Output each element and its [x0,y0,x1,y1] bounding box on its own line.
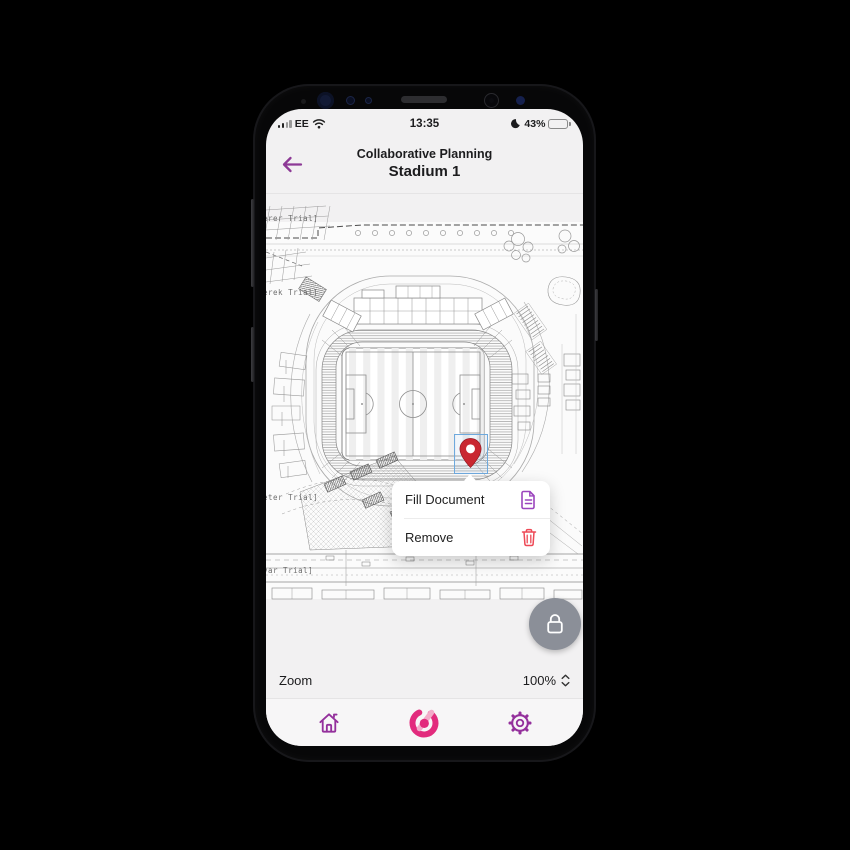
menu-pointer-arrow [463,474,477,482]
earpiece-speaker [401,96,447,103]
power-button [595,289,598,341]
screenshot-canvas: EE 13:35 43% [0,0,850,850]
app-header: Collaborative Planning Stadium 1 [266,134,583,194]
iris-camera [484,93,499,108]
watermark-text: erer Trial] [266,214,318,223]
trash-icon [521,528,537,547]
lock-icon [544,612,566,636]
status-bar: EE 13:35 43% [266,109,583,134]
gear-icon [507,710,533,736]
watermark-text: eter Trial] [266,493,318,502]
front-camera [317,92,334,109]
lock-button[interactable] [529,598,581,650]
zoom-label: Zoom [279,673,312,688]
menu-item-label: Fill Document [405,492,484,507]
page-subtitle: Stadium 1 [357,163,492,180]
app-screen: EE 13:35 43% [266,109,583,746]
nav-settings-button[interactable] [505,708,535,738]
watermark-text: erek Trial] [266,288,318,297]
sensor-dot [301,99,306,104]
proximity-sensor [346,96,355,105]
home-icon [316,710,342,736]
menu-item-label: Remove [405,530,453,545]
document-icon [520,490,537,510]
back-button[interactable] [278,150,306,178]
brand-logo [406,705,442,741]
smartphone-mockup: EE 13:35 43% [253,84,596,762]
pin-selection-box[interactable] [454,434,488,474]
volume-button [251,199,254,287]
bottom-nav-bar [266,698,583,746]
nav-home-button[interactable] [314,708,344,738]
pin-context-menu: Fill Document Remove [392,481,550,556]
map-pin-icon[interactable] [458,437,483,469]
stadium-floorplan: erer Trial] erek Trial] eter Trial] var … [266,194,583,663]
sensor-dot [365,97,372,104]
arrow-left-icon [281,156,303,173]
clock: 13:35 [266,118,583,130]
menu-item-fill-document[interactable]: Fill Document [392,481,550,518]
nav-brand-button[interactable] [404,703,444,743]
led-indicator [516,96,525,105]
floorplan-viewport[interactable]: erer Trial] erek Trial] eter Trial] var … [266,194,583,663]
zoom-level-select[interactable]: 100% [523,673,570,688]
page-title: Collaborative Planning [357,147,492,161]
menu-item-remove[interactable]: Remove [392,519,550,556]
zoom-control: Zoom 100% [266,663,583,698]
zoom-level-value: 100% [523,673,556,688]
chevron-up-down-icon [561,674,570,687]
side-button [251,327,254,382]
watermark-text: var Trial] [266,566,313,575]
